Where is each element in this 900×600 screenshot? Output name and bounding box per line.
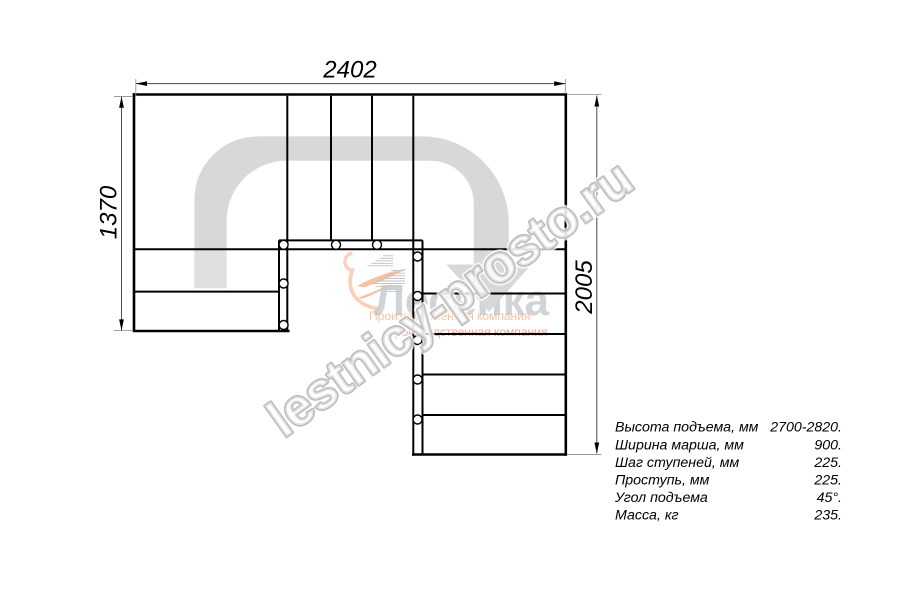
svg-text:Проступь, мм: Проступь, мм [615, 473, 710, 489]
svg-text:Высота подъема, мм: Высота подъема, мм [615, 420, 759, 436]
svg-text:Угол подъема: Угол подъема [614, 490, 708, 506]
svg-text:225.: 225. [813, 455, 842, 471]
svg-text:Масса, кг: Масса, кг [615, 508, 679, 524]
svg-text:2402: 2402 [322, 57, 376, 84]
svg-text:2700-2820.: 2700-2820. [769, 420, 842, 436]
svg-text:Шаг ступеней, мм: Шаг ступеней, мм [615, 455, 739, 471]
svg-text:45°.: 45°. [817, 490, 842, 506]
svg-text:Ширина марша, мм: Ширина марша, мм [615, 437, 744, 453]
svg-text:1370: 1370 [96, 185, 123, 239]
svg-text:2005: 2005 [571, 260, 598, 315]
svg-text:900.: 900. [814, 437, 842, 453]
svg-text:225.: 225. [813, 473, 842, 489]
svg-text:235.: 235. [813, 508, 842, 524]
